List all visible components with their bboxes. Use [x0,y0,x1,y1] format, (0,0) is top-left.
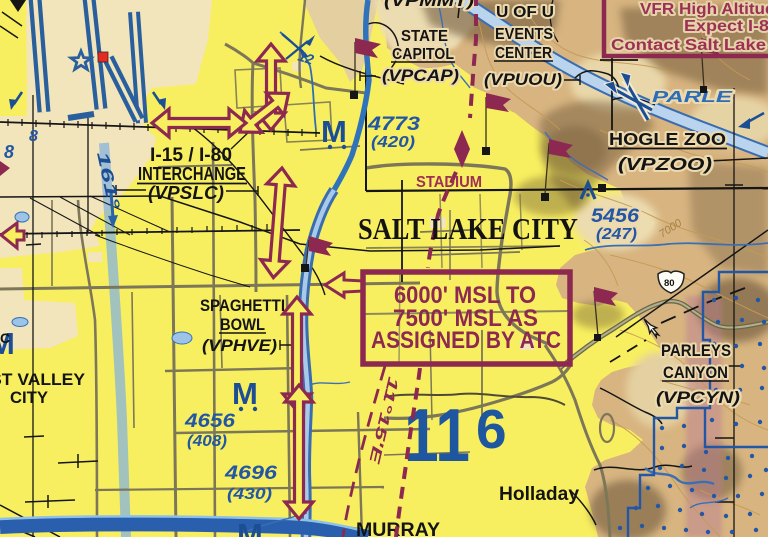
svg-text:U OF U: U OF U [496,4,554,21]
svg-text:M: M [237,517,263,537]
svg-text:Expect I-80: Expect I-80 [684,18,768,35]
svg-text:(VPHVE): (VPHVE) [202,336,277,355]
svg-text:PARLEYS: PARLEYS [661,342,731,360]
svg-text:VFR High Altitude: VFR High Altitude [640,1,768,18]
svg-text:(VPZOO): (VPZOO) [618,154,712,174]
svg-text:M: M [321,114,347,149]
svg-text:EVENTS: EVENTS [495,26,553,43]
svg-text:CITY: CITY [10,388,49,407]
svg-text:Holladay: Holladay [499,484,579,505]
svg-text:8: 8 [29,128,38,145]
svg-text:CAPITOL: CAPITOL [392,46,454,63]
svg-text:M: M [232,376,258,411]
svg-text:STADIUM: STADIUM [416,174,482,191]
svg-text:SPAGHETTI: SPAGHETTI [200,297,285,315]
svg-text:INTERCHANGE: INTERCHANGE [138,163,246,184]
svg-text:80: 80 [664,278,675,289]
svg-text:5456: 5456 [591,206,639,227]
svg-text:CANYON: CANYON [663,364,728,382]
svg-text:8: 8 [4,142,14,162]
svg-text:WEST VALLEY: WEST VALLEY [0,370,86,389]
svg-text:(VPCYN): (VPCYN) [656,388,740,407]
svg-text:C: C [0,330,10,346]
svg-text:11: 11 [404,393,470,477]
svg-text:(420): (420) [371,134,415,151]
svg-text:(247): (247) [596,226,637,243]
svg-text:(VPSLC): (VPSLC) [148,183,224,203]
svg-text:4696: 4696 [224,463,278,484]
svg-text:SALT LAKE CITY: SALT LAKE CITY [358,211,578,246]
svg-text:(VPUOU): (VPUOU) [484,70,562,89]
svg-text:(VPCAP): (VPCAP) [382,66,459,85]
svg-text:HOGLE ZOO: HOGLE ZOO [609,129,726,149]
svg-text:STATE: STATE [401,28,448,45]
svg-text:PARLE: PARLE [652,89,734,106]
svg-text:(408): (408) [187,433,227,450]
svg-text:ASSIGNED BY ATC: ASSIGNED BY ATC [371,327,561,354]
svg-text:6: 6 [476,398,507,460]
svg-text:4656: 4656 [184,411,236,432]
svg-text:Contact Salt Lake: Contact Salt Lake [611,37,766,54]
svg-text:(VPMMT): (VPMMT) [384,0,474,10]
svg-text:CENTER: CENTER [495,45,552,62]
svg-text:4773: 4773 [367,114,421,135]
svg-text:(430): (430) [227,486,272,503]
svg-text:BOWL: BOWL [220,316,265,334]
